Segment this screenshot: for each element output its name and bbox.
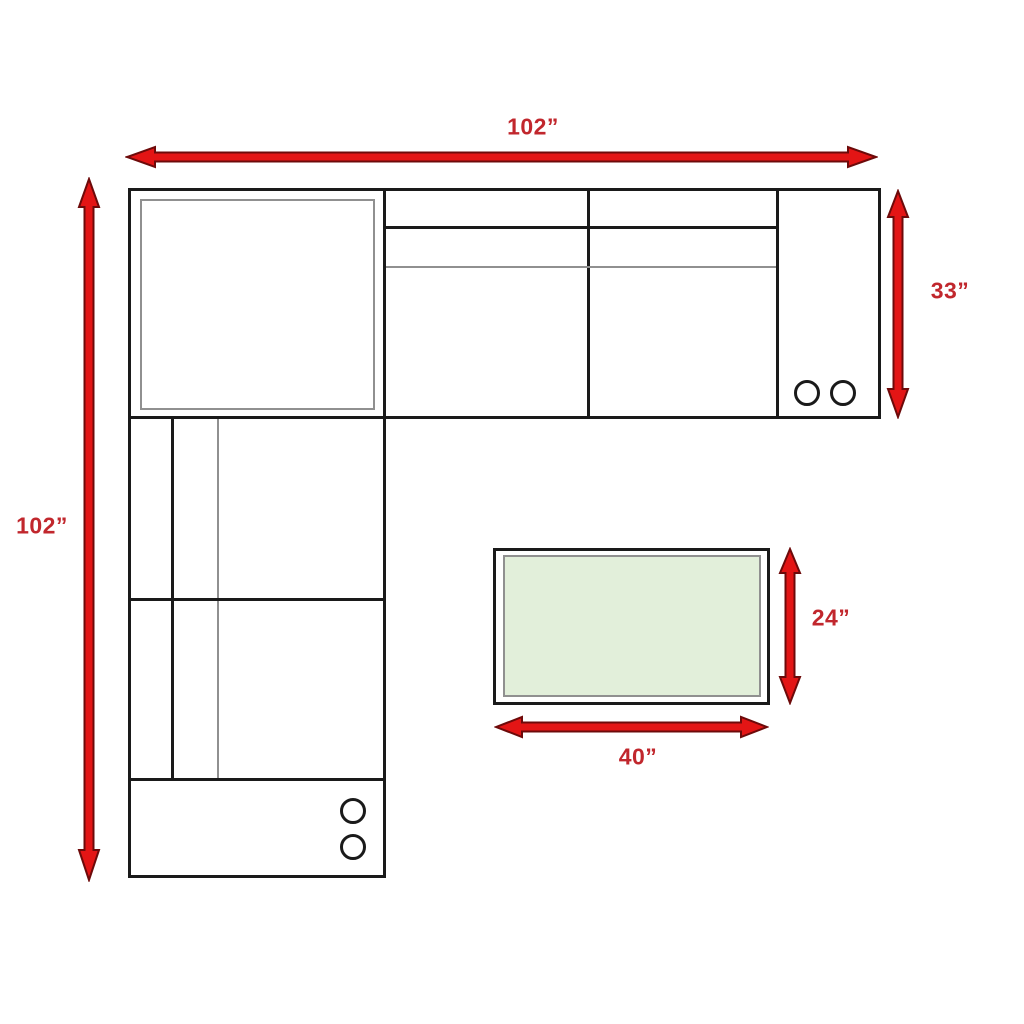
sofa-left-edge (128, 188, 131, 878)
left-height-arrow (77, 177, 101, 882)
cupholder-circle (794, 380, 820, 406)
top-backrest-line (386, 226, 776, 229)
top-seat-divider (587, 188, 590, 419)
cupholder-circle (340, 798, 366, 824)
right-console-divider (776, 188, 779, 419)
sofa-top-edge (128, 188, 881, 191)
sofa-top-width-label: 102” (507, 114, 559, 141)
top-width-arrow (125, 145, 878, 169)
sofa-bottom-edge (128, 875, 386, 878)
left-column-right-edge (383, 188, 386, 878)
sofa-right-edge (878, 188, 881, 419)
ottoman-width-arrow (494, 715, 769, 739)
cupholder-circle (830, 380, 856, 406)
ottoman-outline (493, 548, 770, 705)
left-column-seat-divider (128, 598, 386, 601)
corner-seat-cushion (140, 199, 375, 410)
top-seat-cushion-line (386, 266, 776, 268)
ottoman-width-label: 40” (619, 744, 658, 771)
sofa-left-height-label: 102” (16, 513, 68, 540)
bottom-console-top-edge (128, 778, 386, 781)
ottoman-cushion (503, 555, 761, 697)
ottoman-height-arrow (778, 547, 802, 705)
sofa-top-row-bottom-edge (128, 416, 881, 419)
ottoman-height-label: 24” (812, 605, 851, 632)
right-depth-arrow (886, 189, 910, 419)
cupholder-circle (340, 834, 366, 860)
floor-plan-diagram: 102” 102” 33” 24” 40” (0, 0, 1024, 1024)
sofa-right-depth-label: 33” (931, 278, 970, 305)
